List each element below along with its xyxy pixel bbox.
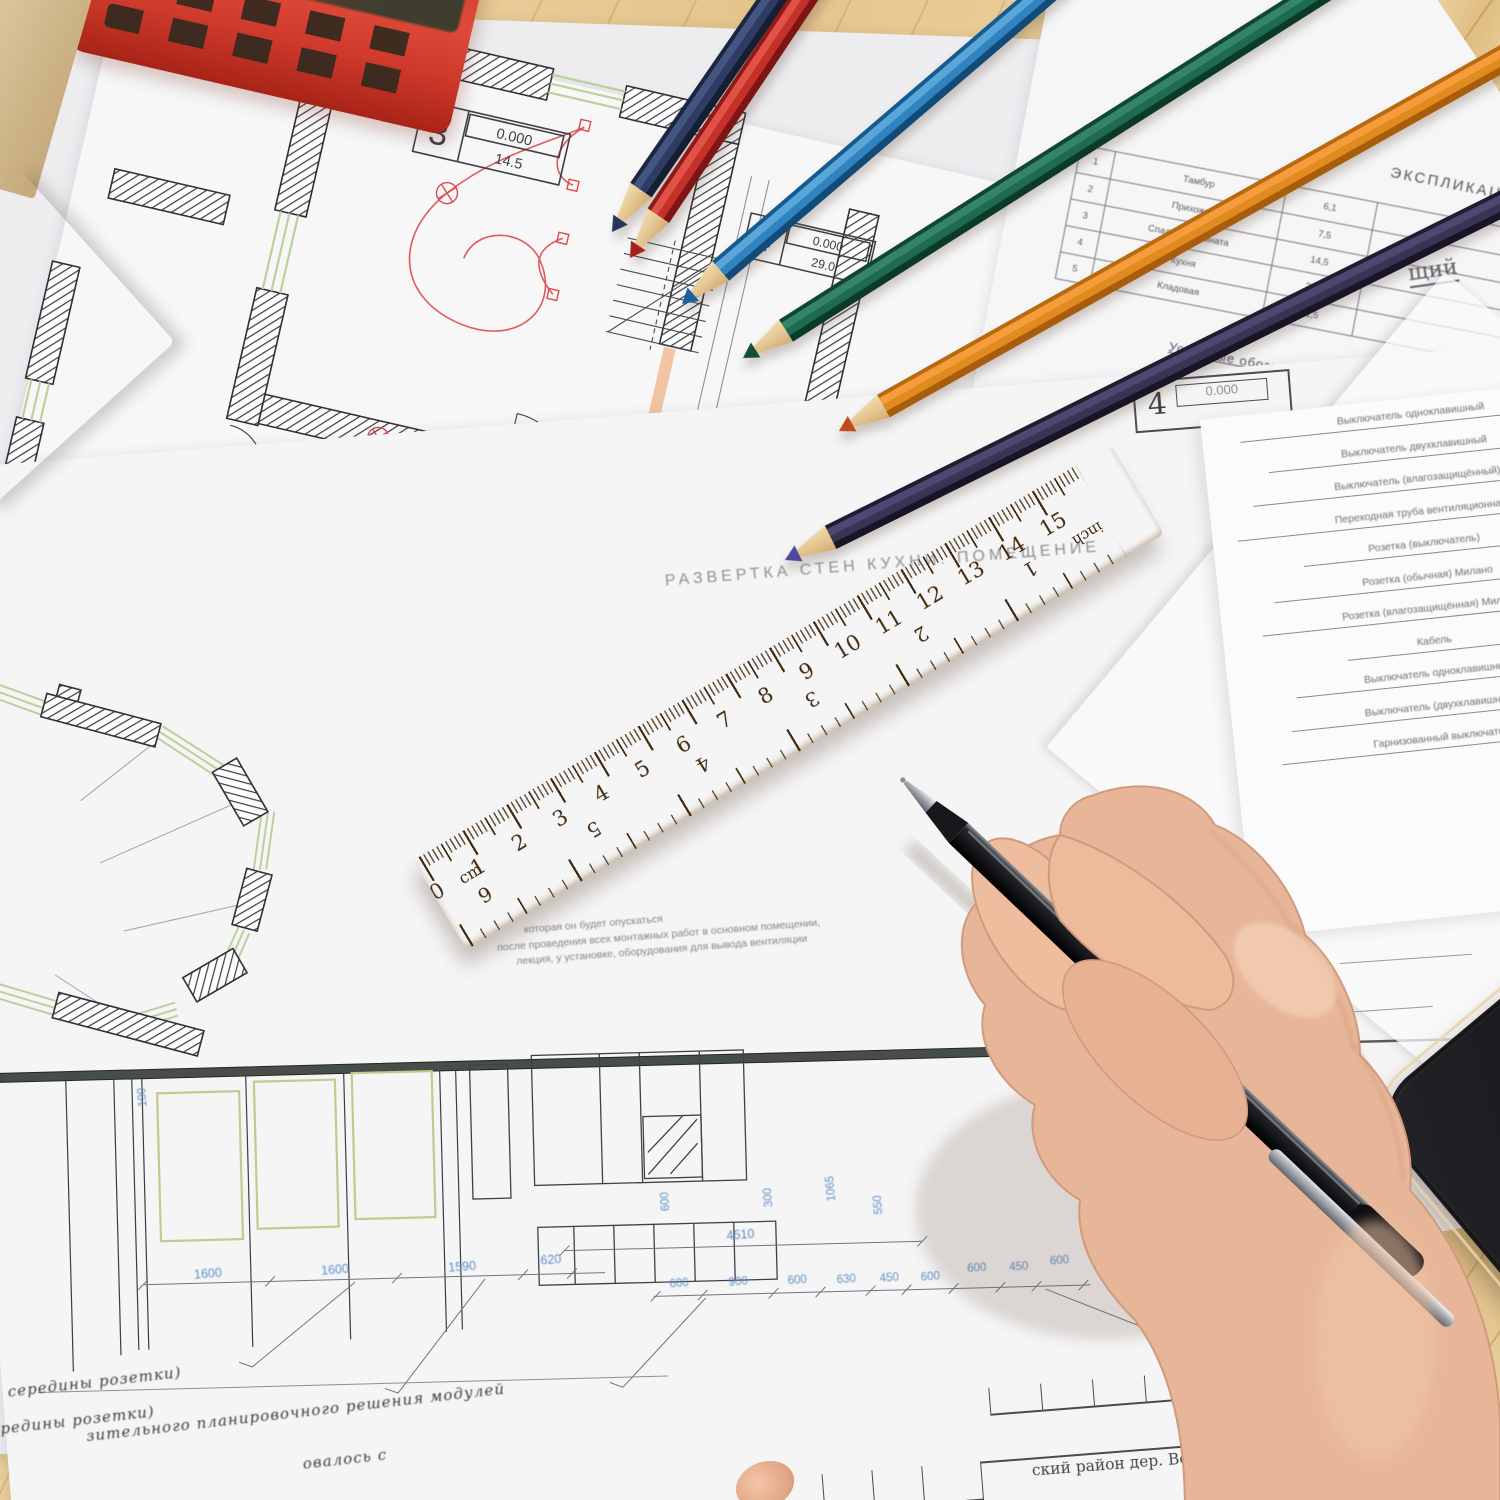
dim-label: 300 — [762, 1187, 775, 1207]
bay-window-plan — [0, 648, 376, 1067]
svg-text:0.000: 0.000 — [811, 234, 844, 255]
legend-row: Кабель — [1346, 621, 1500, 660]
wrist-highlight — [1315, 1220, 1435, 1460]
elevation-cabinets — [157, 1071, 436, 1241]
svg-text:14.5: 14.5 — [493, 151, 524, 173]
dim-label: 1590 — [448, 1259, 477, 1275]
dim-label: 1065 — [824, 1175, 838, 1201]
dim-overall: 4510 — [726, 1227, 755, 1243]
svg-text:29.0: 29.0 — [810, 255, 837, 274]
dim-label: 600 — [659, 1192, 672, 1212]
dim-label: 1600 — [321, 1262, 350, 1278]
dim-label: 620 — [540, 1252, 562, 1268]
dim-label: 600 — [669, 1277, 689, 1290]
desk-scene: 3 0.000 14.5 1 0.000 6.5 2 0.000 10.0 4 … — [0, 0, 1500, 1500]
dim-label: 100 — [136, 1087, 149, 1107]
dim-label: 1600 — [193, 1266, 222, 1282]
hand-with-pen — [855, 720, 1500, 1500]
svg-text:0.000: 0.000 — [495, 126, 534, 150]
